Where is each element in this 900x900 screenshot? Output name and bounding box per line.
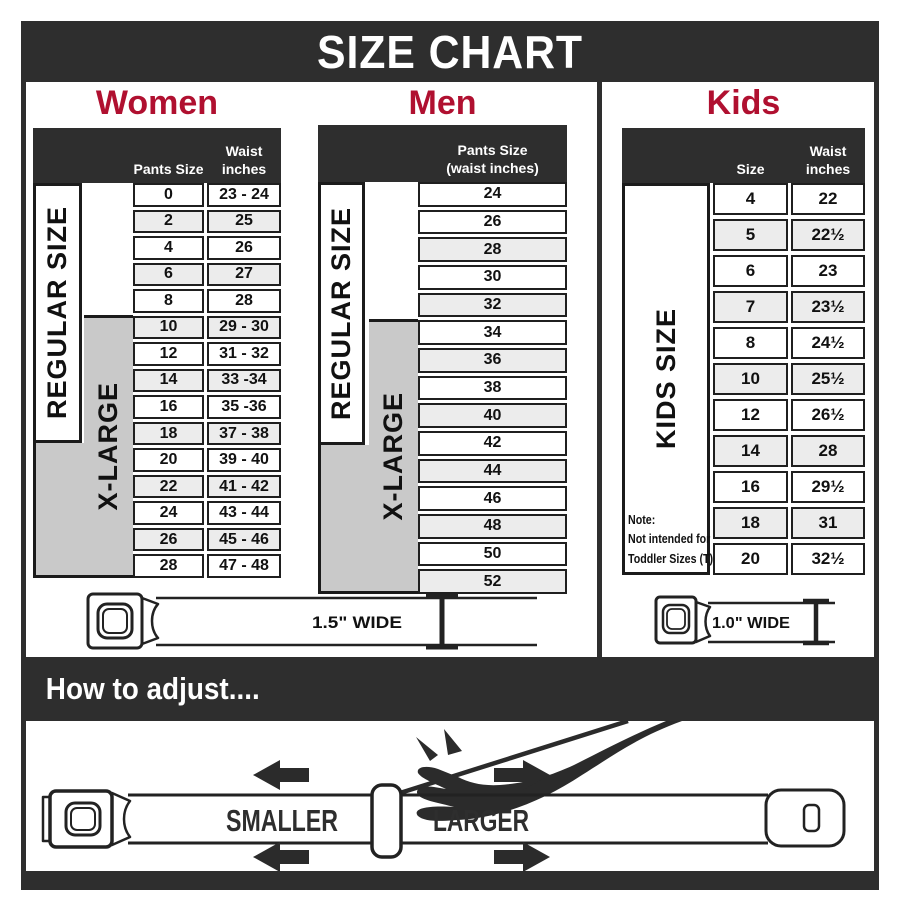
pants-size-cell: 20 [133, 448, 204, 472]
kids-size-cell: 4 [713, 183, 788, 215]
kids-size-cell: 16 [713, 471, 788, 503]
pants-size-cell: 44 [418, 459, 567, 484]
women-table-row: 26 45 - 46 [133, 528, 281, 552]
pants-size-cell: 4 [133, 236, 204, 260]
pants-size-cell: 16 [133, 395, 204, 419]
men-heading: Men [318, 84, 567, 122]
frame-border-right [874, 82, 879, 890]
waist-inches-cell: 27 [207, 263, 281, 287]
waist-inches-cell: 45 - 46 [207, 528, 281, 552]
men-table-row: 26 [418, 210, 567, 235]
waist-inches-cell: 22½ [791, 219, 865, 251]
kids-table-row: 5 22½ [713, 219, 865, 251]
kids-table-body: 4 22 5 22½ 6 23 7 23½ 8 24½ 10 25½ [713, 183, 865, 575]
kids-table-row: 18 31 [713, 507, 865, 539]
kids-belt-width-label: 1.0" WIDE [712, 615, 790, 632]
how-to-adjust-heading: How to adjust.... [26, 671, 260, 707]
pants-size-cell: 38 [418, 376, 567, 401]
kids-header-size: Size [713, 161, 788, 179]
kids-table-row: 14 28 [713, 435, 865, 467]
waist-inches-cell: 28 [207, 289, 281, 313]
kids-size-cell: 18 [713, 507, 788, 539]
kids-table-row: 10 25½ [713, 363, 865, 395]
waist-inches-cell: 23 - 24 [207, 183, 281, 207]
kids-table-row: 16 29½ [713, 471, 865, 503]
kids-belt-illustration: 1.0" WIDE [648, 590, 858, 654]
women-table-row: 8 28 [133, 289, 281, 313]
women-size-table: Pants Size Waist inches REGULAR SIZE X-L… [33, 128, 281, 578]
waist-inches-cell: 39 - 40 [207, 448, 281, 472]
kids-table-row: 4 22 [713, 183, 865, 215]
waist-inches-cell: 31 [791, 507, 865, 539]
size-chart-infographic: SIZE CHART Women Men Kids Pants Size Wai… [0, 0, 900, 900]
men-table-row: 46 [418, 486, 567, 511]
men-table-body: 24 26 28 30 32 34 36 38 40 42 [418, 182, 567, 594]
section-divider [597, 82, 602, 657]
pants-size-cell: 2 [133, 210, 204, 234]
belt-slider [372, 785, 401, 857]
waist-inches-cell: 33 -34 [207, 369, 281, 393]
pants-size-cell: 0 [133, 183, 204, 207]
men-table-row: 48 [418, 514, 567, 539]
seatbelt-buckle-icon [656, 597, 710, 643]
adjustment-diagram: SMALLER LARGER [26, 721, 874, 871]
women-regular-size-label-box: REGULAR SIZE [33, 183, 82, 443]
pants-size-cell: 28 [418, 237, 567, 262]
women-header-pants-size: Pants Size [133, 161, 204, 179]
pants-size-cell: 18 [133, 422, 204, 446]
arrow-left-top-icon [253, 760, 309, 790]
women-table-row: 22 41 - 42 [133, 475, 281, 499]
men-regular-size-label-box: REGULAR SIZE [318, 182, 365, 445]
seatbelt-buckle-icon [43, 791, 130, 847]
waist-inches-cell: 25½ [791, 363, 865, 395]
pants-size-cell: 6 [133, 263, 204, 287]
waist-inches-cell: 29 - 30 [207, 316, 281, 340]
kids-size-cell: 8 [713, 327, 788, 359]
women-table-row: 4 26 [133, 236, 281, 260]
kids-size-cell: 14 [713, 435, 788, 467]
kids-size-label-box: KIDS SIZE Note: Not intended for Toddler… [622, 183, 710, 575]
kids-size-table: Size Waist inches KIDS SIZE Note: Not in… [622, 128, 865, 575]
women-xlarge-label: X-LARGE [93, 382, 124, 511]
kids-size-cell: 6 [713, 255, 788, 287]
pants-size-cell: 14 [133, 369, 204, 393]
pants-size-cell: 32 [418, 293, 567, 318]
waist-inches-cell: 26 [207, 236, 281, 260]
men-table-row: 28 [418, 237, 567, 262]
men-table-row: 50 [418, 542, 567, 567]
kids-size-label: KIDS SIZE [651, 308, 682, 449]
belt-tip [766, 790, 844, 846]
pants-size-cell: 10 [133, 316, 204, 340]
women-xlarge-label-box: X-LARGE [84, 315, 133, 578]
kids-table-row: 20 32½ [713, 543, 865, 575]
kids-table-row: 6 23 [713, 255, 865, 287]
kids-size-cell: 5 [713, 219, 788, 251]
kids-size-cell: 7 [713, 291, 788, 323]
kids-size-cell: 20 [713, 543, 788, 575]
waist-inches-cell: 32½ [791, 543, 865, 575]
waist-inches-cell: 28 [791, 435, 865, 467]
waist-inches-cell: 31 - 32 [207, 342, 281, 366]
how-to-adjust-band: How to adjust.... [26, 657, 874, 721]
women-table-row: 14 33 -34 [133, 369, 281, 393]
men-table-row: 36 [418, 348, 567, 373]
kids-table-row: 7 23½ [713, 291, 865, 323]
pants-size-cell: 46 [418, 486, 567, 511]
pants-size-cell: 22 [133, 475, 204, 499]
kids-table-row: 12 26½ [713, 399, 865, 431]
waist-inches-cell: 37 - 38 [207, 422, 281, 446]
pants-size-cell: 40 [418, 403, 567, 428]
width-measure-icon [426, 596, 458, 647]
pants-size-cell: 28 [133, 554, 204, 578]
men-xlarge-label: X-LARGE [378, 392, 409, 521]
pants-size-cell: 30 [418, 265, 567, 290]
width-measure-icon [803, 601, 829, 643]
women-table-row: 28 47 - 48 [133, 554, 281, 578]
waist-inches-cell: 23½ [791, 291, 865, 323]
waist-inches-cell: 23 [791, 255, 865, 287]
frame-border-bottom [21, 871, 879, 890]
kids-size-cell: 12 [713, 399, 788, 431]
larger-label: LARGER [433, 803, 529, 838]
women-table-row: 20 39 - 40 [133, 448, 281, 472]
men-size-table: Pants Size (waist inches) REGULAR SIZE X… [318, 125, 567, 594]
women-table-row: 16 35 -36 [133, 395, 281, 419]
pants-size-cell: 26 [418, 210, 567, 235]
women-heading: Women [33, 84, 281, 122]
adult-belt-illustration: 1.5" WIDE [80, 588, 550, 654]
kids-size-cell: 10 [713, 363, 788, 395]
toddler-note: Note: Not intended for Toddler Sizes (T) [628, 510, 713, 569]
pants-size-cell: 34 [418, 320, 567, 345]
pants-size-cell: 36 [418, 348, 567, 373]
adult-belt-width-label: 1.5" WIDE [312, 613, 402, 632]
women-table-header: Pants Size Waist inches [33, 128, 281, 183]
women-table-row: 12 31 - 32 [133, 342, 281, 366]
men-xlarge-label-box: X-LARGE [369, 319, 418, 594]
kids-table-row: 8 24½ [713, 327, 865, 359]
women-table-row: 2 25 [133, 210, 281, 234]
women-table-row: 24 43 - 44 [133, 501, 281, 525]
men-table-row: 32 [418, 293, 567, 318]
women-table-row: 0 23 - 24 [133, 183, 281, 207]
pants-size-cell: 8 [133, 289, 204, 313]
waist-inches-cell: 41 - 42 [207, 475, 281, 499]
seatbelt-buckle-icon [88, 594, 158, 648]
men-table-row: 30 [418, 265, 567, 290]
men-table-row: 42 [418, 431, 567, 456]
title-band: SIZE CHART [21, 21, 879, 82]
waist-inches-cell: 47 - 48 [207, 554, 281, 578]
page-title: SIZE CHART [317, 25, 583, 79]
women-table-row: 18 37 - 38 [133, 422, 281, 446]
men-table-row: 34 [418, 320, 567, 345]
men-table-row: 24 [418, 182, 567, 207]
pants-size-cell: 48 [418, 514, 567, 539]
men-table-row: 38 [418, 376, 567, 401]
men-table-row: 40 [418, 403, 567, 428]
arrow-right-bottom-icon [494, 842, 550, 871]
waist-inches-cell: 35 -36 [207, 395, 281, 419]
pants-size-cell: 24 [133, 501, 204, 525]
women-header-waist: Waist inches [207, 143, 281, 178]
kids-heading: Kids [622, 84, 865, 122]
women-regular-size-label: REGULAR SIZE [42, 206, 73, 419]
pants-size-cell: 26 [133, 528, 204, 552]
men-header-pants-size: Pants Size (waist inches) [418, 142, 567, 177]
waist-inches-cell: 22 [791, 183, 865, 215]
waist-inches-cell: 43 - 44 [207, 501, 281, 525]
women-table-row: 10 29 - 30 [133, 316, 281, 340]
men-table-header: Pants Size (waist inches) [318, 125, 567, 182]
smaller-label: SMALLER [226, 803, 338, 838]
pants-size-cell: 50 [418, 542, 567, 567]
men-regular-size-label: REGULAR SIZE [326, 207, 357, 420]
pants-size-cell: 12 [133, 342, 204, 366]
pants-size-cell: 24 [418, 182, 567, 207]
women-table-row: 6 27 [133, 263, 281, 287]
kids-table-header: Size Waist inches [622, 128, 865, 183]
waist-inches-cell: 29½ [791, 471, 865, 503]
men-table-row: 44 [418, 459, 567, 484]
waist-inches-cell: 24½ [791, 327, 865, 359]
women-table-body: 0 23 - 24 2 25 4 26 6 27 8 28 10 29 - 30 [133, 183, 281, 578]
waist-inches-cell: 25 [207, 210, 281, 234]
waist-inches-cell: 26½ [791, 399, 865, 431]
arrow-left-bottom-icon [253, 842, 309, 871]
pants-size-cell: 42 [418, 431, 567, 456]
kids-header-waist: Waist inches [791, 143, 865, 178]
